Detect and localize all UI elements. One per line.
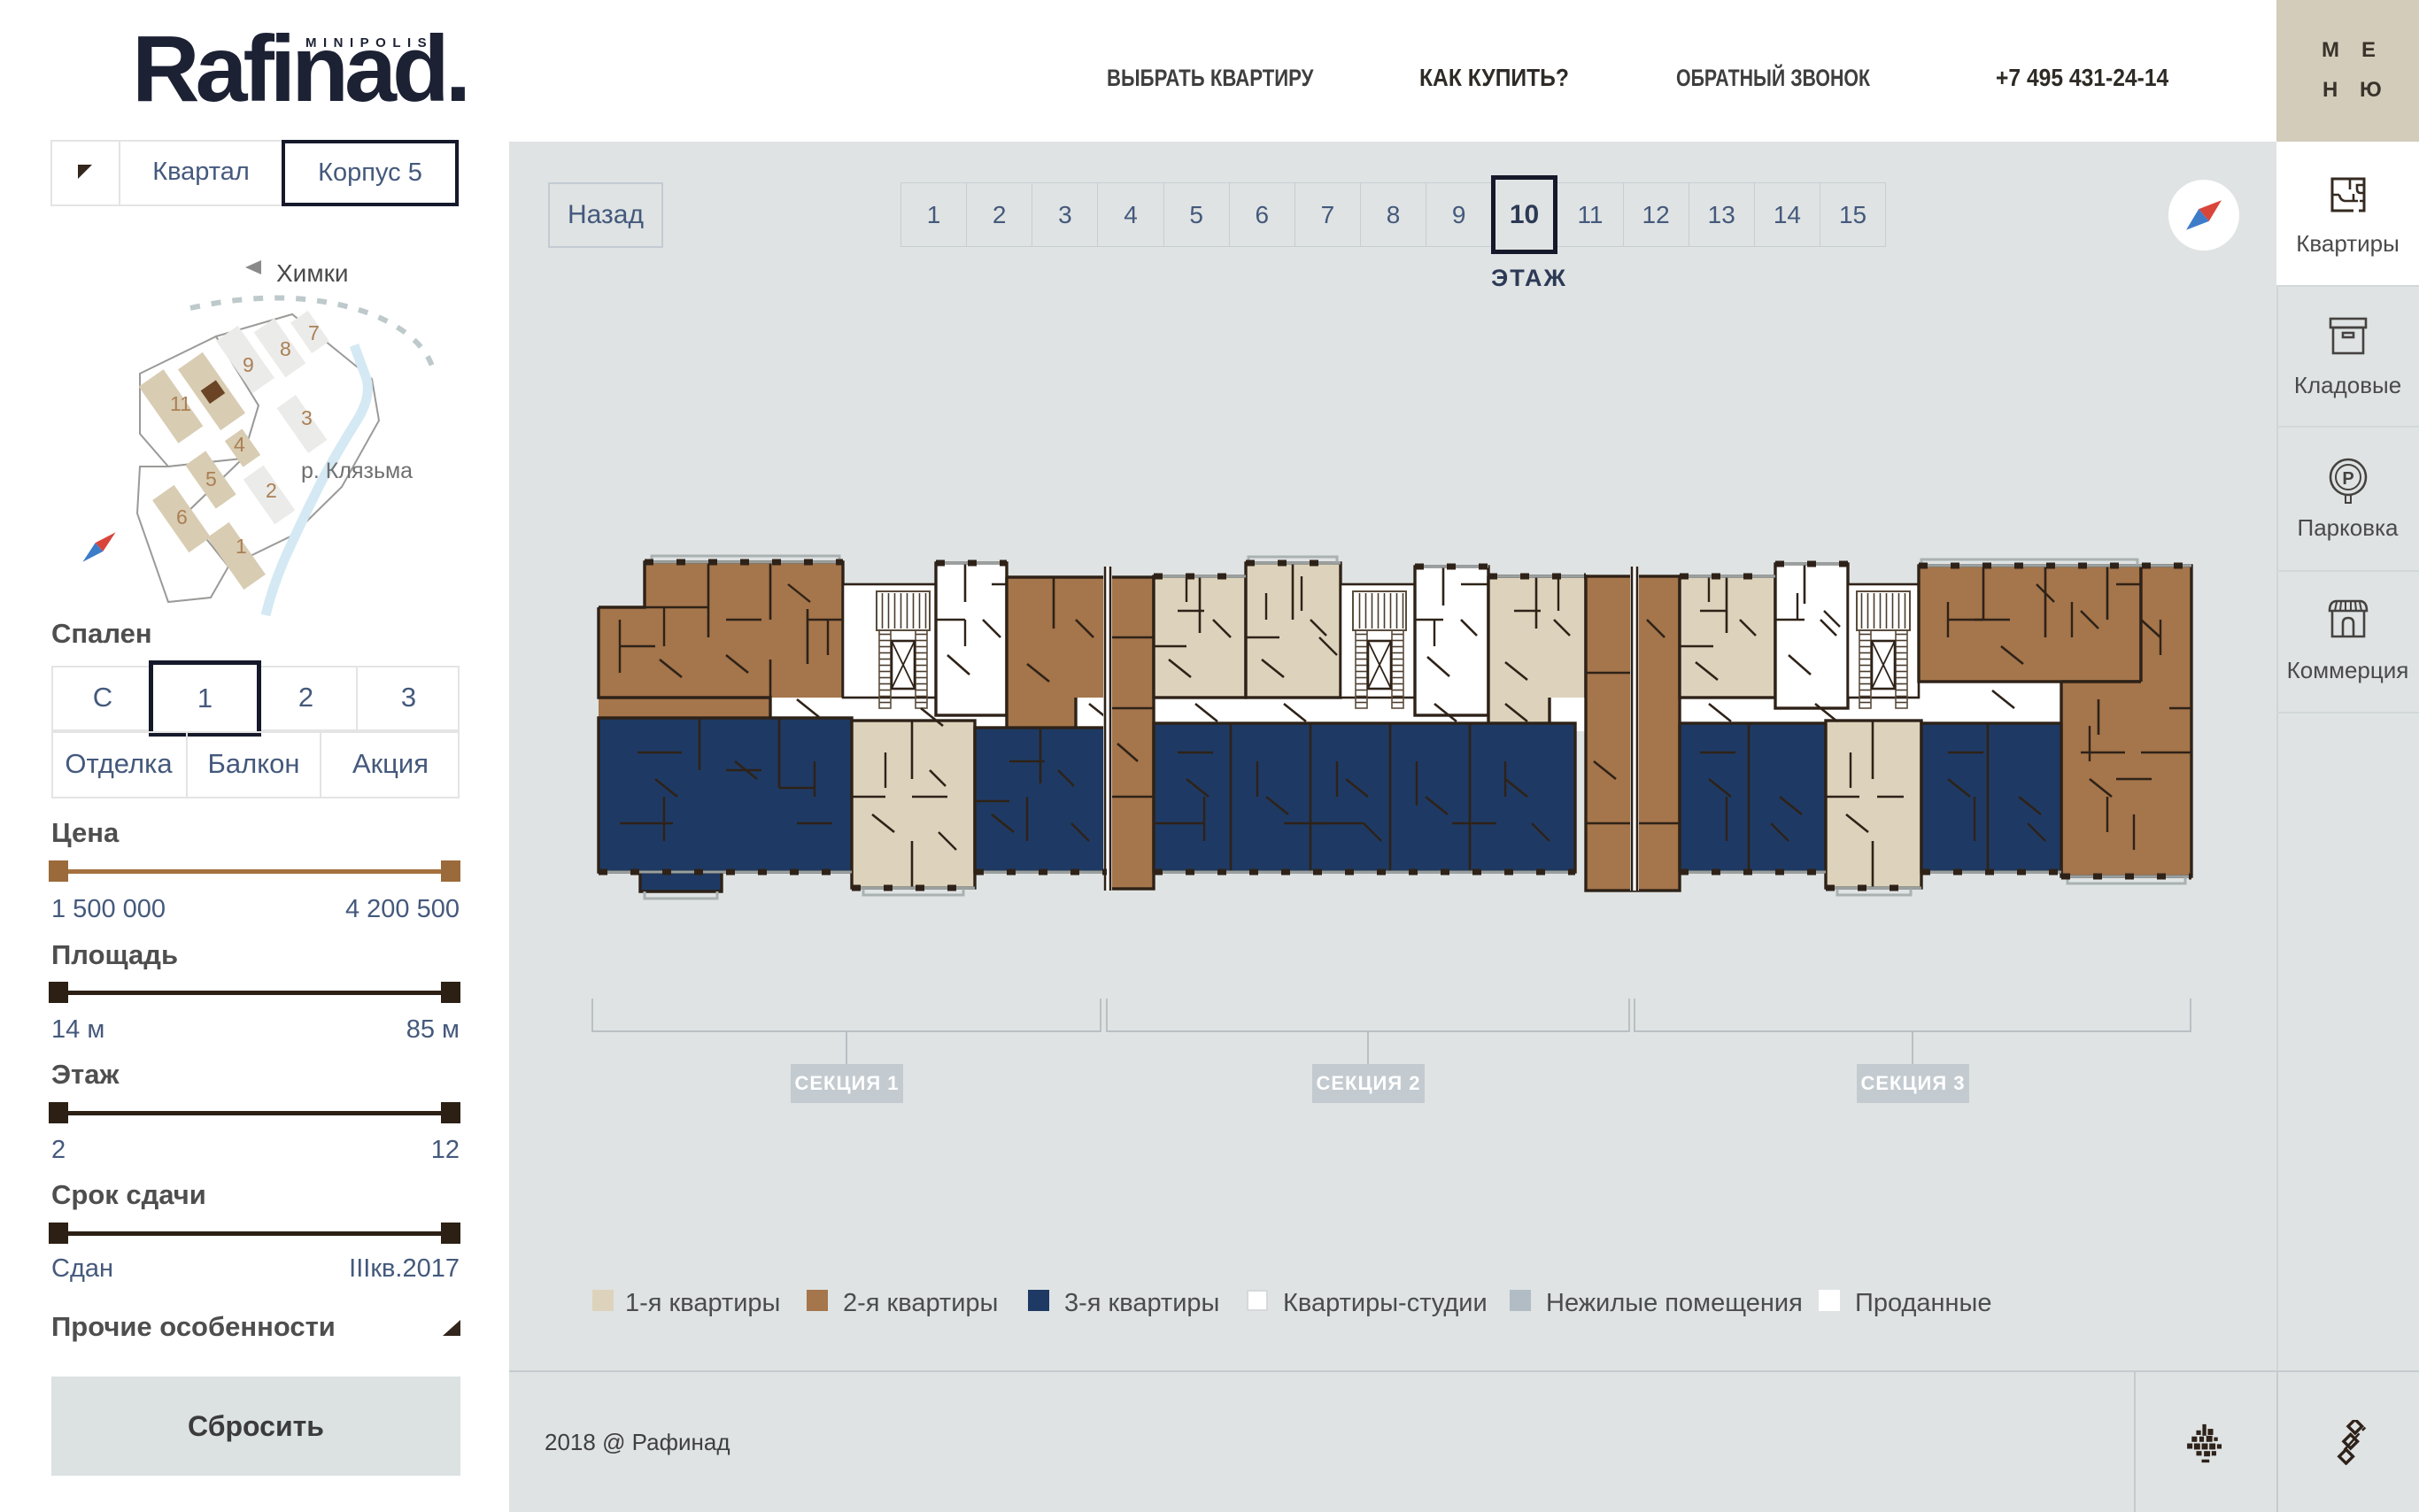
svg-text:7: 7 bbox=[308, 321, 320, 344]
svg-text:р. Клязьма: р. Клязьма bbox=[301, 459, 413, 483]
svg-text:Химки: Химки bbox=[276, 259, 348, 287]
svg-text:8: 8 bbox=[280, 337, 291, 360]
svg-text:1: 1 bbox=[236, 535, 247, 558]
svg-text:3: 3 bbox=[301, 406, 313, 429]
svg-text:6: 6 bbox=[176, 505, 188, 528]
svg-text:2: 2 bbox=[266, 479, 277, 502]
svg-text:P: P bbox=[2342, 469, 2353, 489]
svg-text:4: 4 bbox=[234, 433, 245, 456]
svg-text:9: 9 bbox=[243, 353, 254, 376]
svg-text:5: 5 bbox=[205, 467, 217, 490]
svg-text:11: 11 bbox=[170, 392, 191, 415]
